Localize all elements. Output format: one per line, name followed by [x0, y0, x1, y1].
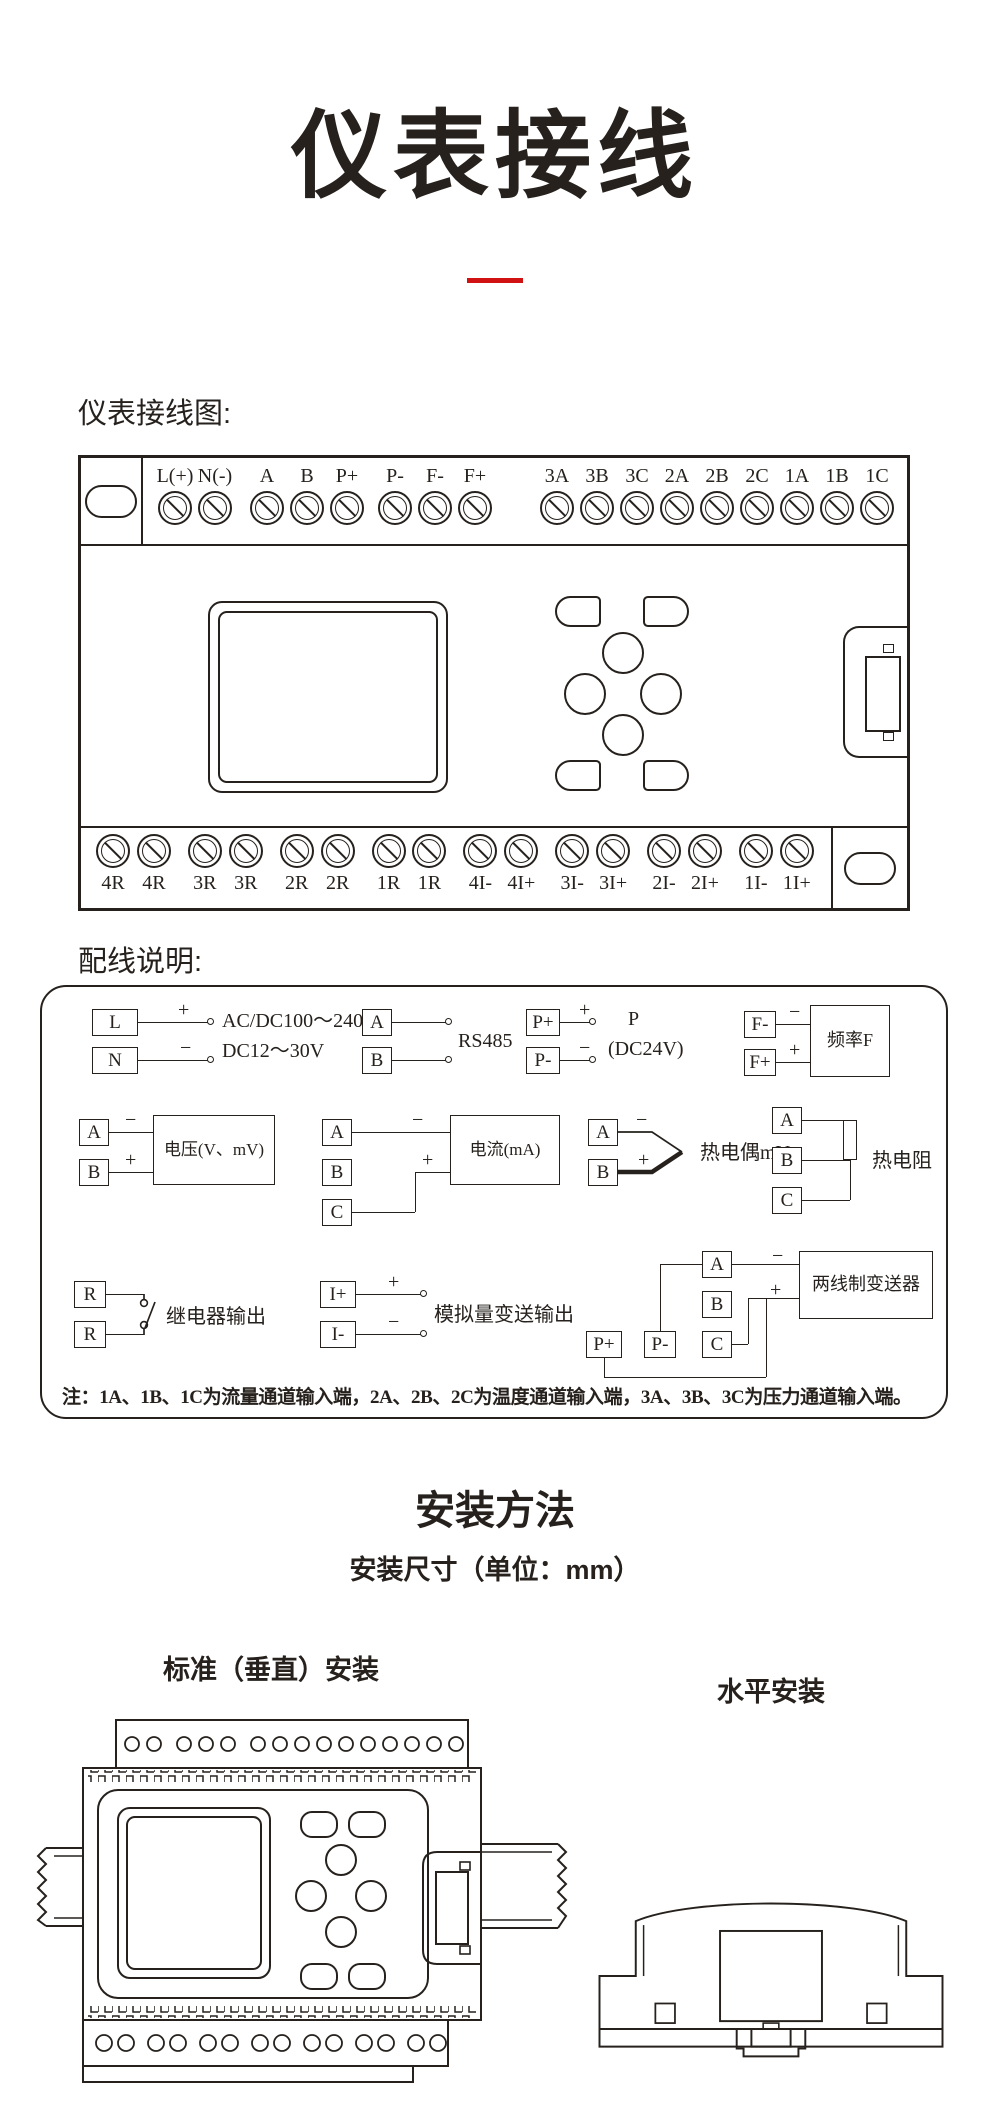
keypad: [548, 591, 708, 796]
top-left-cell: [81, 458, 143, 544]
top-terminal-row: L(+) N(-): [143, 458, 907, 544]
terminal-label: 2A: [665, 463, 689, 489]
wire: [732, 1344, 748, 1345]
module-frequency: F- F+ − + 频率F: [742, 1001, 942, 1083]
terminal-box: B: [702, 1291, 732, 1318]
screw-terminal-icon: [647, 834, 681, 868]
wire-end-dot: [445, 1018, 452, 1025]
terminal-label: F-: [426, 463, 444, 489]
polarity-sign: −: [180, 1038, 191, 1058]
wire-end-dot: [445, 1056, 452, 1063]
polarity-sign: +: [388, 1272, 399, 1292]
display-screen-inner: [218, 611, 438, 783]
thermocouple-junction-icon: [618, 1121, 690, 1177]
polarity-sign: +: [579, 1000, 590, 1020]
terminal: 1B: [817, 463, 857, 544]
terminal-label: 2R: [285, 870, 308, 896]
terminal-box: B: [588, 1159, 618, 1186]
terminal-label: 1A: [785, 463, 809, 489]
terminal-label: 3A: [545, 463, 569, 489]
module-rtd-input: A B C 热电阻: [770, 1103, 950, 1229]
screw-terminal-icon: [540, 491, 574, 525]
wiring-notes-panel: L N + − AC/DC100～240V DC12～30V A B RS485…: [40, 985, 948, 1419]
wire: [732, 1264, 799, 1265]
polarity-sign: +: [638, 1150, 649, 1170]
wire: [766, 1298, 767, 1377]
key-left: [564, 673, 606, 715]
terminal-label: 1R: [418, 870, 441, 896]
wire: [660, 1264, 661, 1331]
side-connector: [843, 626, 907, 758]
wire: [415, 1172, 416, 1212]
wire: [109, 1172, 153, 1173]
terminal: 1A: [777, 463, 817, 544]
module-text: 继电器输出: [166, 1305, 266, 1330]
terminal-box: C: [322, 1199, 352, 1226]
terminal-label: F+: [464, 463, 486, 489]
side-connector-socket: [865, 656, 901, 732]
module-text: 热电阻: [872, 1149, 932, 1174]
screw-terminal-icon: [290, 491, 324, 525]
bottom-terminal-strip: 4R 4R: [81, 826, 907, 908]
module-text: P: [628, 1007, 639, 1032]
screw-terminal-icon: [412, 834, 446, 868]
terminal: 3C: [617, 463, 657, 544]
terminal-box: P-: [526, 1047, 560, 1074]
bottom-right-cell: [831, 828, 907, 908]
terminal-label: 3B: [585, 463, 608, 489]
key-top-right: [643, 596, 689, 627]
terminal: 2I+: [685, 834, 725, 908]
screw-terminal-icon: [860, 491, 894, 525]
terminal-box: L: [92, 1009, 138, 1036]
terminal: 1R: [409, 834, 449, 908]
connector-notch: [883, 644, 894, 653]
screw-terminal-icon: [688, 834, 722, 868]
screw-terminal-icon: [620, 491, 654, 525]
wiring-notes-label: 配线说明:: [78, 938, 202, 980]
screw-terminal-icon: [504, 834, 538, 868]
top-terminal-strip: L(+) N(-): [81, 458, 907, 546]
module-power-supply: L N + − AC/DC100～240V DC12～30V: [80, 1001, 380, 1081]
key-top-left: [555, 596, 601, 627]
terminal-label: 4I+: [507, 870, 535, 896]
terminal-box: I+: [320, 1281, 356, 1308]
wire: [850, 1160, 851, 1200]
device-box: 电压(V、mV): [153, 1115, 275, 1185]
terminal: F-: [415, 463, 455, 544]
polarity-sign: +: [178, 1000, 189, 1020]
terminal-box: A: [362, 1009, 392, 1036]
terminal-box: B: [322, 1159, 352, 1186]
page-title: 仪表接线: [0, 78, 990, 217]
relay-contact-icon: [130, 1294, 166, 1336]
terminal: 1C: [857, 463, 897, 544]
wire: [138, 1060, 210, 1061]
screw-terminal-icon: [378, 491, 412, 525]
terminal: 3R: [226, 834, 266, 908]
terminal: 3I+: [593, 834, 633, 908]
screw-terminal-icon: [330, 491, 364, 525]
wire: [604, 1377, 766, 1378]
module-text: (DC24V): [608, 1037, 684, 1062]
install-subtitle: 安装尺寸（单位：mm）: [0, 1548, 990, 1587]
module-current-input: A B C − 电流(mA) +: [320, 1111, 565, 1229]
terminal-label: 3R: [193, 870, 216, 896]
terminal-box: A: [322, 1119, 352, 1146]
terminal-label: 3C: [625, 463, 648, 489]
terminal-label: A: [260, 463, 274, 489]
terminal: L(+): [155, 463, 195, 544]
polarity-sign: −: [789, 1002, 800, 1022]
terminal: 3B: [577, 463, 617, 544]
terminal: A: [247, 463, 287, 544]
wire-end-dot: [589, 1018, 596, 1025]
terminal: 2B: [697, 463, 737, 544]
wire-end-dot: [420, 1330, 427, 1337]
module-analog-output: I+ I- + − 模拟量变送输出: [320, 1275, 575, 1355]
terminal-box: N: [92, 1047, 138, 1074]
terminal-label: 2I-: [652, 870, 675, 896]
terminal-label: B: [300, 463, 313, 489]
module-text: 模拟量变送输出: [434, 1303, 574, 1328]
terminal: 3A: [537, 463, 577, 544]
screw-terminal-icon: [555, 834, 589, 868]
terminal: 1I+: [777, 834, 817, 908]
terminal-label: 1R: [377, 870, 400, 896]
terminal-box: A: [772, 1107, 802, 1134]
screw-terminal-icon: [739, 834, 773, 868]
bottom-terminal-row: 4R 4R: [81, 828, 831, 908]
device-wiring-diagram: L(+) N(-): [78, 455, 910, 911]
terminal-box: R: [74, 1281, 106, 1308]
terminal-label: 1C: [865, 463, 888, 489]
polarity-sign: −: [388, 1312, 399, 1332]
wire: [660, 1264, 702, 1265]
terminal-label: 1I+: [783, 870, 811, 896]
device-box: 两线制变送器: [799, 1251, 933, 1319]
wire: [138, 1022, 210, 1023]
wire: [356, 1334, 422, 1335]
screw-terminal-icon: [780, 491, 814, 525]
wire: [604, 1358, 605, 1377]
module-two-wire-transmitter: A B C P- P+ 两线制变送器 − +: [582, 1237, 947, 1392]
screw-terminal-icon: [250, 491, 284, 525]
wire: [352, 1212, 415, 1213]
wire: [392, 1060, 448, 1061]
horizontal-install-label: 水平安装: [717, 1670, 825, 1709]
terminal-label: 3I-: [561, 870, 584, 896]
terminal-label: 2I+: [691, 870, 719, 896]
screw-terminal-icon: [580, 491, 614, 525]
terminal-label: N(-): [198, 463, 232, 489]
screw-terminal-icon: [198, 491, 232, 525]
terminal: F+: [455, 463, 495, 544]
terminal-label: 3R: [234, 870, 257, 896]
terminal-label: 3I+: [599, 870, 627, 896]
module-p-output: P+ P- + − P (DC24V): [524, 1001, 709, 1081]
polarity-sign: −: [125, 1110, 136, 1130]
wire: [356, 1294, 422, 1295]
wire: [748, 1298, 749, 1344]
screw-terminal-icon: [96, 834, 130, 868]
terminal: 4R: [93, 834, 133, 908]
connector-notch: [883, 732, 894, 741]
terminal: 4I-: [460, 834, 500, 908]
terminal: 3I-: [552, 834, 592, 908]
horizontal-install-diagram: [575, 1878, 967, 2078]
polarity-sign: +: [789, 1040, 800, 1060]
module-relay-output: R R 继电器输出: [72, 1275, 302, 1355]
key-down: [602, 714, 644, 756]
terminal: 1I-: [736, 834, 776, 908]
terminal-label: L(+): [157, 463, 194, 489]
screw-terminal-icon: [700, 491, 734, 525]
wire: [109, 1132, 153, 1133]
wire-end-dot: [207, 1056, 214, 1063]
wire: [392, 1022, 448, 1023]
wire: [415, 1172, 450, 1173]
device-box: 频率F: [810, 1005, 890, 1077]
screw-terminal-icon: [280, 834, 314, 868]
display-screen: [208, 601, 448, 793]
terminal-box: F-: [744, 1011, 776, 1038]
screw-terminal-icon: [660, 491, 694, 525]
polarity-sign: −: [579, 1038, 590, 1058]
wire: [776, 1024, 810, 1025]
terminal-box: I-: [320, 1321, 356, 1348]
module-text: RS485: [458, 1029, 512, 1054]
key-bottom-right: [643, 760, 689, 791]
key-up: [602, 632, 644, 674]
polarity-sign: +: [770, 1280, 781, 1300]
terminal: P-: [375, 463, 415, 544]
module-text: DC12～30V: [222, 1039, 324, 1064]
polarity-sign: +: [125, 1150, 136, 1170]
screw-terminal-icon: [418, 491, 452, 525]
terminal-box: F+: [744, 1049, 776, 1076]
module-voltage-input: A B − + 电压(V、mV): [77, 1111, 315, 1223]
screw-terminal-icon: [158, 491, 192, 525]
wire-end-dot: [420, 1290, 427, 1297]
vertical-install-label: 标准（垂直）安装: [163, 1648, 379, 1687]
module-rs485: A B RS485: [360, 1001, 540, 1081]
terminal: P+: [327, 463, 367, 544]
wire: [802, 1200, 850, 1201]
polarity-sign: −: [636, 1110, 647, 1130]
screw-terminal-icon: [820, 491, 854, 525]
terminal-label: 4I-: [469, 870, 492, 896]
terminal-box: P+: [586, 1331, 622, 1358]
terminal: 2I-: [644, 834, 684, 908]
terminal-box: B: [79, 1159, 109, 1186]
terminal-label: P+: [336, 463, 358, 489]
screw-terminal-icon: [740, 491, 774, 525]
screw-terminal-icon: [188, 834, 222, 868]
terminal-box: C: [702, 1331, 732, 1358]
terminal-box: B: [362, 1047, 392, 1074]
channel-note: 注：1A、1B、1C为流量通道输入端，2A、2B、2C为温度通道输入端，3A、3…: [62, 1387, 912, 1410]
terminal-label: P-: [386, 463, 404, 489]
terminal-label: 1I-: [744, 870, 767, 896]
screw-terminal-icon: [780, 834, 814, 868]
terminal: 2R: [318, 834, 358, 908]
terminal-box: C: [772, 1187, 802, 1214]
manual-page: 仪表接线 仪表接线图: L(+): [0, 0, 990, 2108]
device-box: 电流(mA): [450, 1115, 560, 1185]
screw-terminal-icon: [229, 834, 263, 868]
wiring-figure-label: 仪表接线图:: [78, 390, 231, 432]
wire: [560, 1022, 592, 1023]
resistor-icon: [843, 1120, 857, 1160]
mounting-slot-icon: [85, 485, 137, 518]
key-right: [640, 673, 682, 715]
screw-terminal-icon: [372, 834, 406, 868]
terminal: 2C: [737, 463, 777, 544]
terminal: 4R: [134, 834, 174, 908]
terminal-label: 4R: [101, 870, 124, 896]
title-divider: [467, 278, 523, 283]
terminal-box: B: [772, 1147, 802, 1174]
terminal: 4I+: [501, 834, 541, 908]
key-bottom-left: [555, 760, 601, 791]
polarity-sign: −: [412, 1110, 423, 1130]
terminal-box: P-: [644, 1331, 676, 1358]
terminal-label: 1B: [825, 463, 848, 489]
terminal-label: 2B: [705, 463, 728, 489]
screw-terminal-icon: [596, 834, 630, 868]
module-text: AC/DC100～240V: [222, 1009, 378, 1034]
terminal-label: 4R: [142, 870, 165, 896]
install-title: 安装方法: [0, 1478, 990, 1536]
vertical-install-diagram: [28, 1702, 573, 2090]
terminal-box: A: [79, 1119, 109, 1146]
terminal-label: 2R: [326, 870, 349, 896]
terminal-box: A: [702, 1251, 732, 1278]
screw-terminal-icon: [458, 491, 492, 525]
polarity-sign: +: [422, 1150, 433, 1170]
terminal-box: R: [74, 1321, 106, 1348]
wire-end-dot: [589, 1056, 596, 1063]
terminal-label: 2C: [745, 463, 768, 489]
terminal: N(-): [195, 463, 235, 544]
wire: [352, 1132, 450, 1133]
mounting-slot-icon: [844, 852, 896, 885]
screw-terminal-icon: [463, 834, 497, 868]
terminal: 3R: [185, 834, 225, 908]
screw-terminal-icon: [321, 834, 355, 868]
terminal-box: A: [588, 1119, 618, 1146]
terminal: 1R: [369, 834, 409, 908]
terminal: 2A: [657, 463, 697, 544]
wire: [560, 1060, 592, 1061]
wire: [802, 1160, 850, 1161]
polarity-sign: −: [772, 1246, 783, 1266]
wire: [776, 1062, 810, 1063]
terminal: B: [287, 463, 327, 544]
terminal: 2R: [277, 834, 317, 908]
device-front-panel: [81, 546, 907, 826]
terminal-box: P+: [526, 1009, 560, 1036]
wire-end-dot: [207, 1018, 214, 1025]
screw-terminal-icon: [137, 834, 171, 868]
